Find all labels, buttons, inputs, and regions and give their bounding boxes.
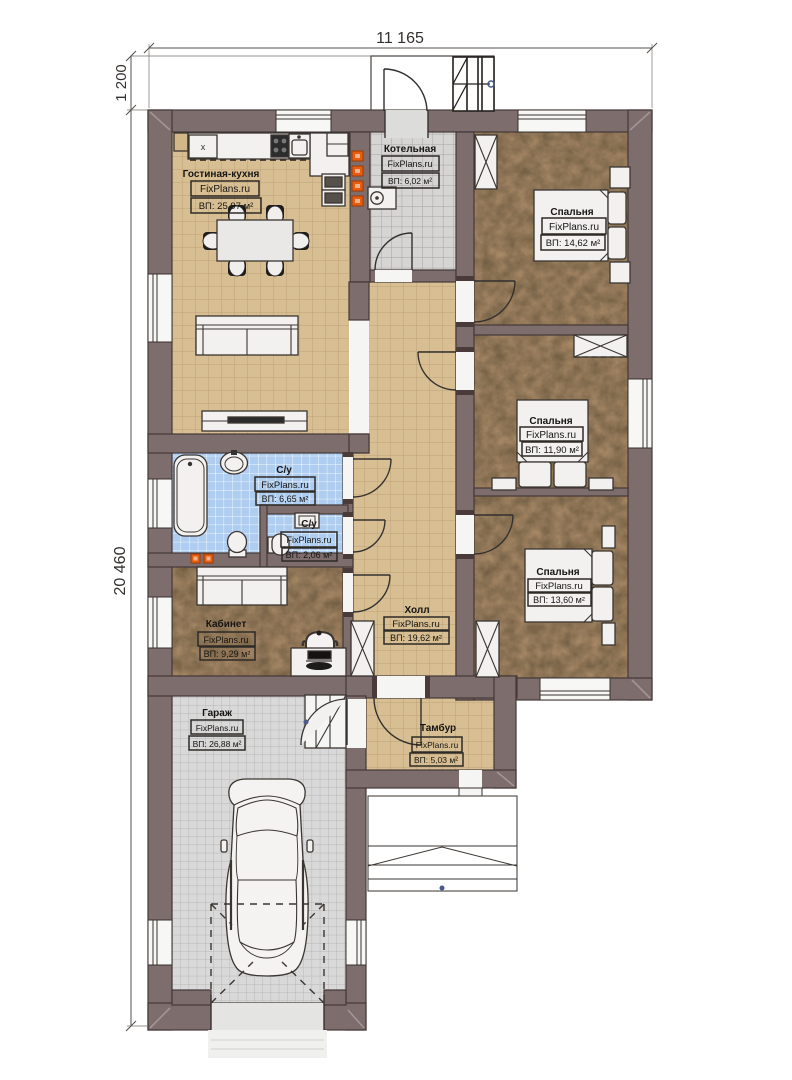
svg-text:ВП: 26,88 м²: ВП: 26,88 м² <box>193 739 242 749</box>
svg-text:FixPlans.ru: FixPlans.ru <box>200 184 250 195</box>
svg-text:Гараж: Гараж <box>202 708 233 719</box>
svg-text:FixPlans.ru: FixPlans.ru <box>526 430 576 441</box>
svg-text:Гостиная-кухня: Гостиная-кухня <box>183 169 260 180</box>
svg-text:Котельная: Котельная <box>384 144 437 155</box>
svg-text:FixPlans.ru: FixPlans.ru <box>286 535 331 545</box>
svg-text:ВП: 6,65 м²: ВП: 6,65 м² <box>262 494 309 504</box>
svg-text:x: x <box>201 142 206 152</box>
svg-text:ВП: 9,29 м²: ВП: 9,29 м² <box>204 649 251 659</box>
svg-text:FixPlans.ru: FixPlans.ru <box>549 222 599 233</box>
svg-text:ВП: 25,97 м²: ВП: 25,97 м² <box>199 201 254 212</box>
svg-text:FixPlans.ru: FixPlans.ru <box>387 159 432 169</box>
svg-text:ВП: 2,06 м²: ВП: 2,06 м² <box>286 550 333 560</box>
svg-text:Тамбур: Тамбур <box>420 722 456 734</box>
svg-text:ВП: 5,03 м²: ВП: 5,03 м² <box>414 755 458 765</box>
svg-text:20 460: 20 460 <box>112 546 129 595</box>
svg-text:FixPlans.ru: FixPlans.ru <box>196 723 239 733</box>
svg-text:FixPlans.ru: FixPlans.ru <box>535 581 583 592</box>
svg-text:ВП: 14,62 м²: ВП: 14,62 м² <box>546 238 601 249</box>
svg-text:ВП: 11,90 м²: ВП: 11,90 м² <box>525 445 579 456</box>
svg-text:ВП: 6,02 м²: ВП: 6,02 м² <box>388 176 432 186</box>
svg-text:Спальня: Спальня <box>529 416 572 427</box>
svg-text:FixPlans.ru: FixPlans.ru <box>416 740 459 750</box>
svg-text:С/у: С/у <box>276 465 292 476</box>
svg-text:FixPlans.ru: FixPlans.ru <box>203 635 248 645</box>
svg-text:Холл: Холл <box>404 605 429 616</box>
svg-text:ВП: 13,60 м²: ВП: 13,60 м² <box>533 595 585 605</box>
svg-text:ВП: 19,62 м²: ВП: 19,62 м² <box>390 633 442 643</box>
svg-text:11 165: 11 165 <box>376 30 424 47</box>
svg-text:Спальня: Спальня <box>550 207 593 218</box>
svg-text:Кабинет: Кабинет <box>206 618 247 630</box>
svg-text:FixPlans.ru: FixPlans.ru <box>392 619 440 630</box>
svg-text:Спальня: Спальня <box>536 567 579 578</box>
svg-text:FixPlans.ru: FixPlans.ru <box>261 480 309 491</box>
svg-text:1 200: 1 200 <box>113 64 130 102</box>
svg-text:С/у: С/у <box>301 519 317 530</box>
